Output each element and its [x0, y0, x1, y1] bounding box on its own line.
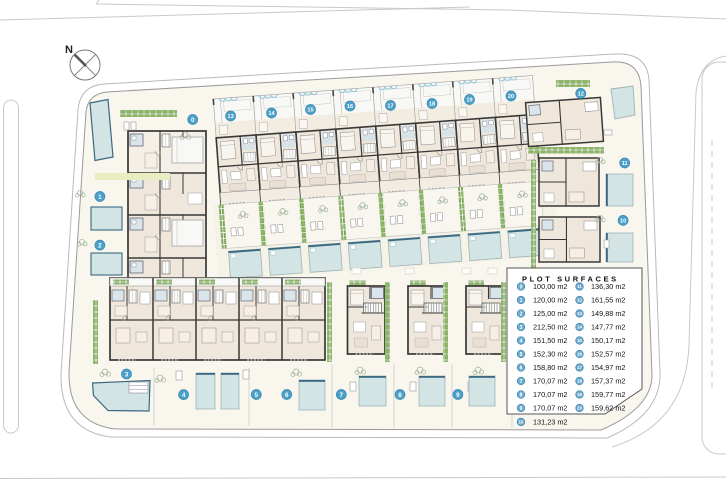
- svg-text:149,88 m2: 149,88 m2: [591, 309, 625, 318]
- svg-text:20: 20: [577, 406, 582, 411]
- svg-text:6: 6: [285, 392, 289, 399]
- svg-text:9: 9: [520, 406, 523, 412]
- svg-text:120,00 m2: 120,00 m2: [533, 295, 567, 304]
- svg-text:161,55 m2: 161,55 m2: [591, 295, 625, 304]
- svg-text:1: 1: [520, 298, 523, 304]
- svg-text:10: 10: [519, 419, 524, 424]
- svg-text:8: 8: [398, 392, 402, 399]
- svg-text:2: 2: [98, 242, 102, 249]
- svg-text:100,00 m2: 100,00 m2: [533, 282, 567, 291]
- svg-text:157,37 m2: 157,37 m2: [591, 376, 625, 385]
- svg-text:1: 1: [98, 194, 102, 201]
- svg-text:4: 4: [520, 338, 523, 344]
- svg-text:4: 4: [182, 392, 186, 399]
- svg-text:2: 2: [520, 311, 523, 317]
- svg-text:17: 17: [577, 365, 582, 370]
- svg-text:18: 18: [577, 379, 582, 384]
- svg-text:170,07 m2: 170,07 m2: [533, 390, 567, 399]
- svg-text:18: 18: [429, 102, 435, 108]
- svg-text:0: 0: [520, 284, 523, 290]
- svg-text:11: 11: [622, 161, 628, 167]
- svg-text:16: 16: [347, 104, 353, 110]
- svg-text:14: 14: [268, 111, 275, 117]
- svg-text:154,97 m2: 154,97 m2: [591, 363, 625, 372]
- svg-text:12: 12: [577, 298, 582, 303]
- svg-text:N: N: [65, 44, 73, 56]
- svg-text:8: 8: [520, 392, 523, 398]
- svg-text:15: 15: [577, 338, 582, 343]
- svg-text:150,17 m2: 150,17 m2: [591, 336, 625, 345]
- svg-text:7: 7: [340, 392, 344, 399]
- svg-text:147,77 m2: 147,77 m2: [591, 322, 625, 331]
- svg-text:11: 11: [577, 284, 582, 289]
- svg-text:159,77 m2: 159,77 m2: [591, 390, 625, 399]
- svg-text:7: 7: [520, 379, 523, 385]
- svg-text:212,50 m2: 212,50 m2: [533, 322, 567, 331]
- svg-text:19: 19: [577, 392, 582, 397]
- svg-text:16: 16: [577, 352, 582, 357]
- svg-text:12: 12: [578, 91, 584, 97]
- svg-text:14: 14: [577, 325, 582, 330]
- svg-text:170,07 m2: 170,07 m2: [533, 376, 567, 385]
- svg-text:152,57 m2: 152,57 m2: [591, 349, 625, 358]
- svg-text:125,00 m2: 125,00 m2: [533, 309, 567, 318]
- svg-text:159,62 m2: 159,62 m2: [591, 403, 625, 412]
- svg-text:6: 6: [520, 365, 523, 371]
- svg-text:19: 19: [466, 98, 472, 104]
- svg-text:17: 17: [387, 104, 393, 110]
- svg-text:13: 13: [577, 311, 582, 316]
- svg-text:20: 20: [508, 94, 514, 100]
- svg-text:170,07 m2: 170,07 m2: [533, 403, 567, 412]
- svg-text:136,30 m2: 136,30 m2: [591, 282, 625, 291]
- svg-text:152,30 m2: 152,30 m2: [533, 349, 567, 358]
- svg-text:151,50 m2: 151,50 m2: [533, 336, 567, 345]
- svg-text:15: 15: [307, 108, 313, 114]
- svg-text:5: 5: [520, 352, 523, 358]
- svg-text:3: 3: [520, 325, 523, 331]
- svg-text:158,80 m2: 158,80 m2: [533, 363, 567, 372]
- svg-text:13: 13: [227, 114, 233, 120]
- svg-text:131,23 m2: 131,23 m2: [533, 417, 567, 426]
- svg-text:3: 3: [125, 371, 129, 378]
- svg-text:9: 9: [456, 392, 460, 399]
- svg-text:5: 5: [255, 392, 259, 399]
- svg-text:10: 10: [620, 218, 626, 224]
- svg-text:0: 0: [191, 117, 195, 124]
